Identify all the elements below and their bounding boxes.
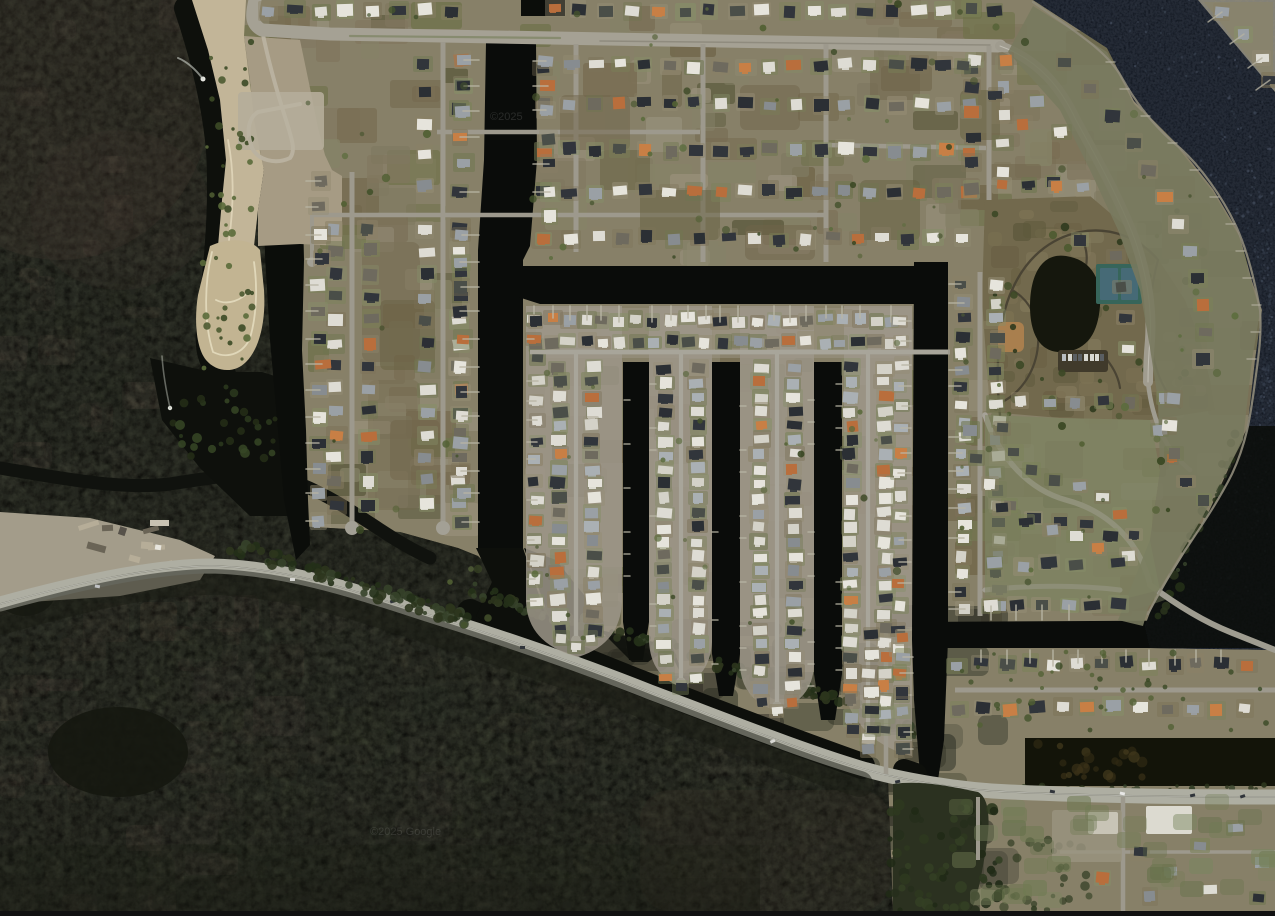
svg-text:©2025 Google: ©2025 Google [370, 826, 441, 838]
svg-text:©2025: ©2025 [490, 111, 523, 123]
